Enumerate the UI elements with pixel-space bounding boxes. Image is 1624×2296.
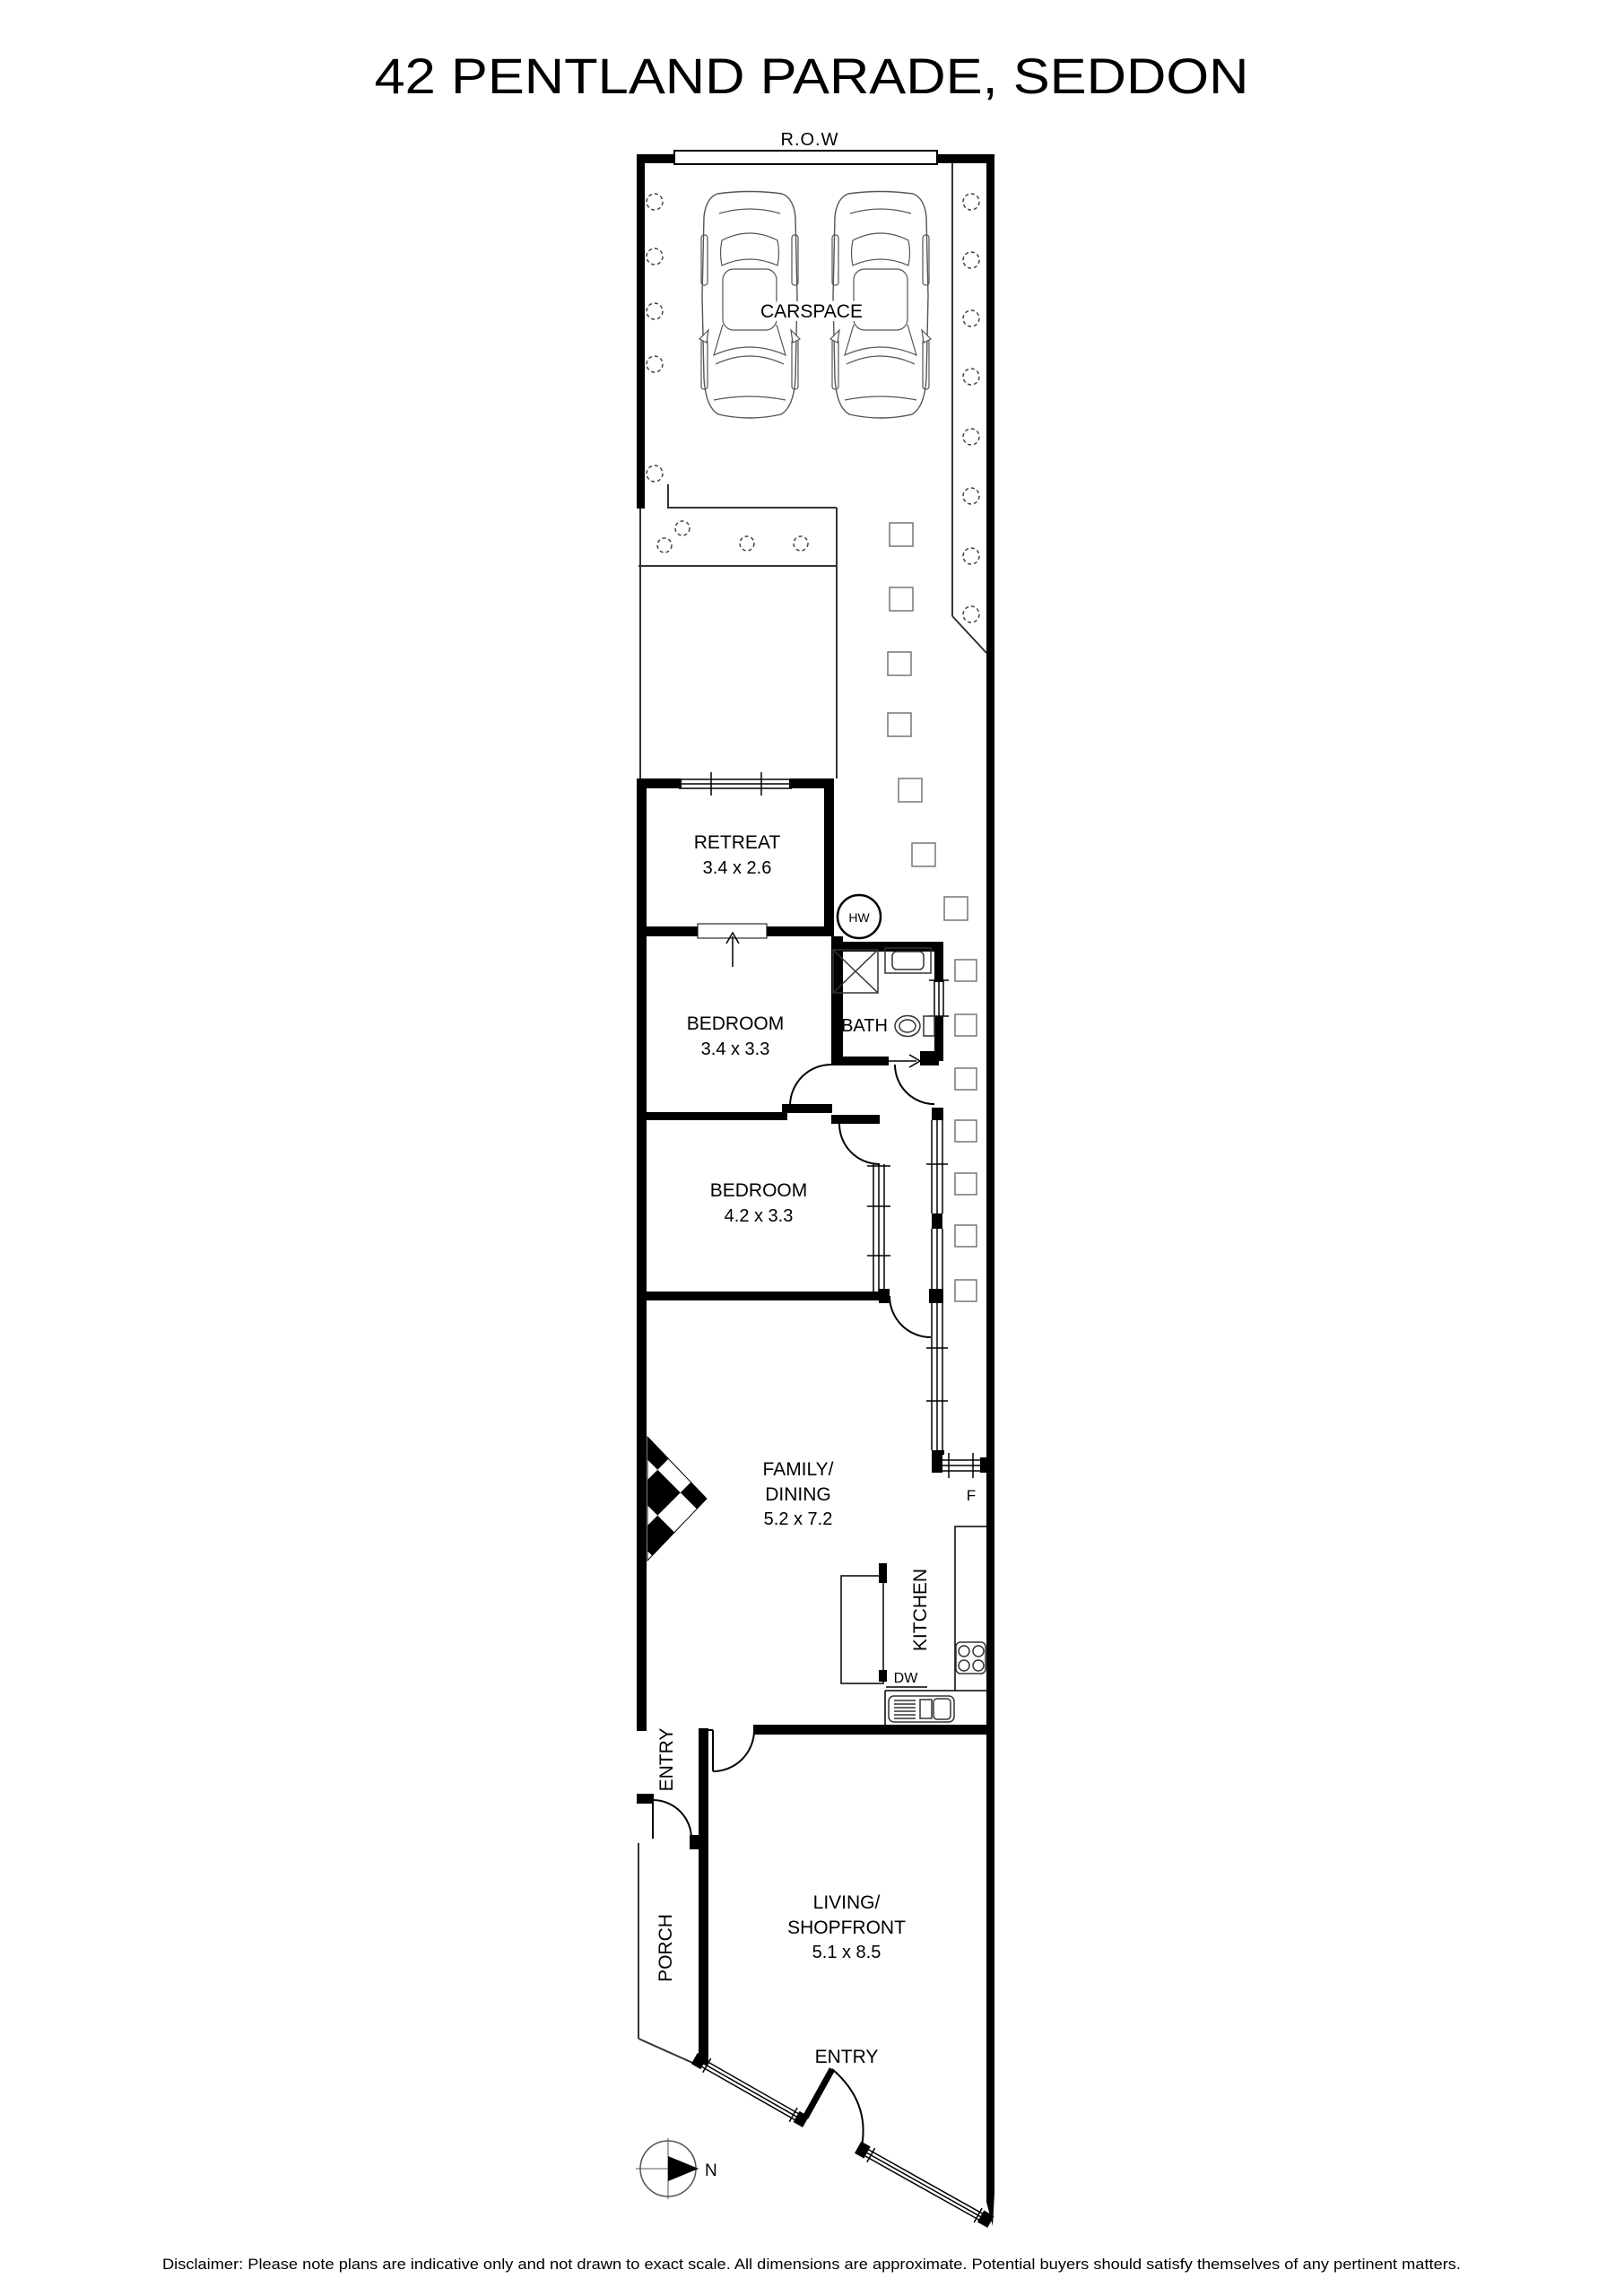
toilet-icon <box>895 1016 934 1037</box>
floor-plan-page: 42 PENTLAND PARADE, SEDDON R.O.W <box>0 0 1624 2296</box>
hallway <box>831 1065 934 1164</box>
living-label-1: LIVING/ <box>813 1892 881 1913</box>
porch-label: PORCH <box>656 1914 676 1982</box>
row-label: R.O.W <box>781 130 839 150</box>
bedroom-2: BEDROOM 4.2 x 3.3 <box>710 1164 890 1291</box>
bedroom1-dims: 3.4 x 3.3 <box>701 1039 770 1059</box>
step-opening <box>698 924 767 967</box>
family-label-2: DINING <box>765 1484 831 1505</box>
shop-entry-label: ENTRY <box>815 2047 879 2067</box>
entry-hall-label: ENTRY <box>656 1728 677 1792</box>
fireplace-icon <box>647 1437 707 1561</box>
rear-gate <box>674 151 937 164</box>
hall-external-door-arc <box>895 1065 934 1104</box>
shop-entry-door <box>805 2069 864 2146</box>
bath-window <box>929 980 949 1016</box>
shopfront-window-a <box>690 2051 810 2128</box>
family-door-arc <box>890 1296 931 1337</box>
east-window-wall <box>926 1108 948 1465</box>
bedroom1-door-arc <box>790 1065 831 1106</box>
living-label-2: SHOPFRONT <box>787 1918 906 1938</box>
vanity-icon <box>885 948 931 973</box>
porch-area: PORCH <box>638 1843 699 2066</box>
family-dims: 5.2 x 7.2 <box>764 1509 833 1529</box>
compass-icon: N <box>636 2138 717 2199</box>
retreat-window <box>679 772 792 796</box>
carspace-area: CARSPACE <box>699 192 931 419</box>
bath-room: BATH <box>831 942 949 1067</box>
shopfront-window-b <box>854 2141 994 2230</box>
sink-icon <box>889 1696 954 1722</box>
bedroom-1: BEDROOM 3.4 x 3.3 <box>637 936 843 1120</box>
retreat-dims: 3.4 x 2.6 <box>703 858 772 878</box>
island-bench <box>841 1563 887 1683</box>
kitchen-area: DW KITCHEN <box>753 1526 994 1735</box>
hot-water-label: HW <box>848 910 870 925</box>
fridge-label: F <box>967 1487 976 1504</box>
page-title: 42 PENTLAND PARADE, SEDDON <box>375 48 1249 104</box>
living-dims: 5.1 x 8.5 <box>812 1943 881 1962</box>
north-label: N <box>705 2161 717 2180</box>
family-label-1: FAMILY/ <box>763 1459 834 1480</box>
family-dining-room: FAMILY/ DINING 5.2 x 7.2 F <box>637 1108 994 1561</box>
retreat-room: RETREAT 3.4 x 2.6 <box>637 772 834 1731</box>
cooktop-icon <box>956 1642 986 1674</box>
disclaimer: Disclaimer: Please note plans are indica… <box>162 2256 1461 2273</box>
bedroom2-door-arc <box>839 1124 880 1164</box>
dishwasher-label: DW <box>894 1671 919 1686</box>
carspace-label: CARSPACE <box>760 301 863 322</box>
boundary-walls <box>637 154 994 2226</box>
entry-hall: ENTRY <box>637 1728 754 2065</box>
kitchen-label: KITCHEN <box>910 1569 931 1651</box>
sliding-door-arrow <box>889 1055 920 1067</box>
bath-label: BATH <box>841 1016 888 1036</box>
living-shopfront: LIVING/ SHOPFRONT 5.1 x 8.5 ENTRY <box>690 1892 994 2230</box>
bedroom2-dims: 4.2 x 3.3 <box>725 1206 794 1226</box>
bedroom1-label: BEDROOM <box>687 1013 785 1034</box>
floor-plan: 42 PENTLAND PARADE, SEDDON R.O.W <box>0 0 1624 2296</box>
bedroom2-window <box>867 1164 890 1291</box>
porch-door-arc <box>653 1800 691 1839</box>
retreat-label: RETREAT <box>694 832 781 853</box>
yard-lines <box>638 484 837 778</box>
bedroom2-label: BEDROOM <box>710 1180 808 1201</box>
entry-door-arc <box>713 1730 754 1771</box>
hot-water-icon: HW <box>838 895 881 938</box>
